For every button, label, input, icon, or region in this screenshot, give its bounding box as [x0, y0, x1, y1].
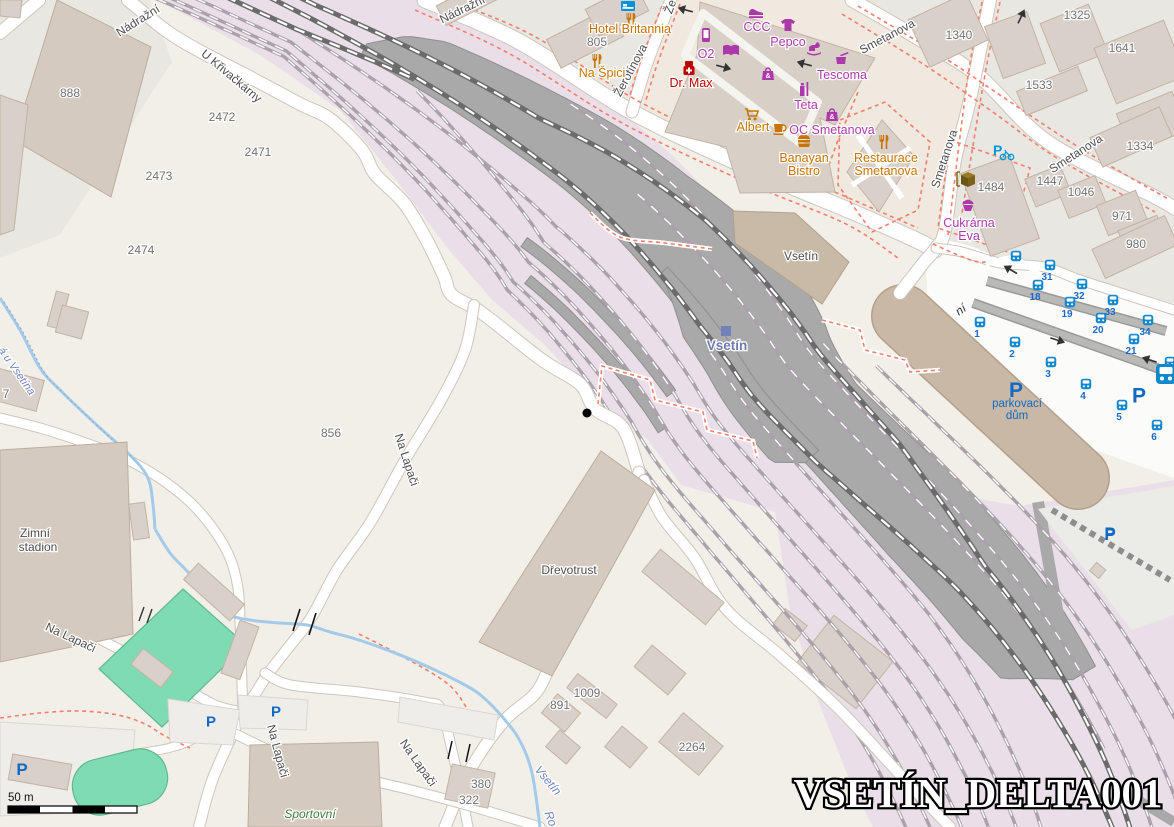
svg-text:1641: 1641: [1109, 41, 1136, 55]
svg-text:Zimní: Zimní: [20, 526, 51, 540]
svg-text:Smetanova: Smetanova: [854, 164, 917, 178]
svg-text:1484: 1484: [978, 180, 1005, 194]
svg-text:1533: 1533: [1026, 78, 1053, 92]
svg-text:1009: 1009: [574, 686, 601, 700]
svg-text:Restaurace: Restaurace: [854, 151, 918, 165]
svg-text:Na Špici: Na Špici: [579, 65, 626, 80]
svg-text:34: 34: [1139, 327, 1151, 338]
svg-text:P: P: [1132, 385, 1146, 408]
svg-text:5: 5: [1116, 412, 1122, 423]
svg-text:P: P: [271, 703, 281, 720]
svg-text:Dr. Max: Dr. Max: [669, 76, 713, 90]
svg-text:Vsetín: Vsetín: [784, 249, 818, 263]
svg-text:&: &: [765, 73, 770, 80]
svg-text:Teta: Teta: [794, 98, 818, 112]
svg-text:Bistro: Bistro: [788, 164, 820, 178]
svg-text:50 m: 50 m: [8, 792, 34, 804]
svg-text:322: 322: [459, 793, 479, 807]
svg-text:parkovací: parkovací: [992, 398, 1043, 410]
svg-text:980: 980: [1126, 237, 1146, 251]
svg-text:4: 4: [1080, 391, 1086, 402]
svg-text:&: &: [829, 114, 834, 121]
svg-text:21: 21: [1125, 346, 1137, 357]
svg-text:20: 20: [1092, 325, 1104, 336]
svg-text:stadion: stadion: [19, 540, 58, 554]
svg-text:1046: 1046: [1068, 185, 1095, 199]
svg-text:Albert: Albert: [737, 120, 770, 134]
svg-text:1447: 1447: [1037, 174, 1064, 188]
svg-text:P: P: [1104, 524, 1115, 543]
svg-text:31: 31: [1041, 272, 1053, 283]
svg-text:2473: 2473: [146, 169, 173, 183]
svg-text:Sportovní: Sportovní: [284, 807, 337, 821]
svg-text:2264: 2264: [679, 740, 706, 754]
svg-text:Banayan: Banayan: [779, 151, 828, 165]
svg-text:CCC: CCC: [743, 20, 770, 34]
svg-text:380: 380: [471, 777, 491, 791]
svg-text:Cukrárna: Cukrárna: [943, 216, 994, 230]
svg-text:2472: 2472: [209, 110, 236, 124]
svg-text:P: P: [206, 713, 216, 730]
svg-text:6: 6: [1151, 432, 1157, 443]
svg-text:3: 3: [1045, 369, 1051, 380]
svg-text:Vsetín: Vsetín: [707, 338, 748, 353]
svg-text:Dřevotrust: Dřevotrust: [541, 563, 597, 577]
svg-text:888: 888: [60, 86, 80, 100]
svg-text:OC Smetanova: OC Smetanova: [789, 123, 875, 137]
svg-text:Tescoma: Tescoma: [817, 68, 867, 82]
svg-text:Pepco: Pepco: [770, 35, 805, 49]
svg-text:19: 19: [1061, 309, 1073, 320]
svg-text:1340: 1340: [946, 28, 973, 42]
svg-text:1334: 1334: [1127, 139, 1154, 153]
svg-text:971: 971: [1112, 209, 1132, 223]
svg-text:1325: 1325: [1064, 8, 1091, 22]
svg-text:Hotel Britannia: Hotel Britannia: [589, 22, 671, 36]
svg-text:O2: O2: [698, 47, 715, 61]
svg-text:P: P: [16, 760, 27, 779]
svg-text:dům: dům: [1006, 410, 1028, 422]
svg-text:1: 1: [974, 329, 980, 340]
svg-text:2: 2: [1009, 349, 1015, 360]
svg-text:VSETÍN_DELTA001: VSETÍN_DELTA001: [793, 770, 1162, 816]
svg-text:2474: 2474: [128, 243, 155, 257]
svg-text:856: 856: [321, 426, 341, 440]
svg-text:805: 805: [587, 35, 607, 49]
svg-text:891: 891: [550, 698, 570, 712]
svg-text:2471: 2471: [245, 145, 272, 159]
svg-text:18: 18: [1029, 292, 1041, 303]
svg-text:Eva: Eva: [958, 229, 980, 243]
svg-text:7: 7: [3, 387, 10, 401]
